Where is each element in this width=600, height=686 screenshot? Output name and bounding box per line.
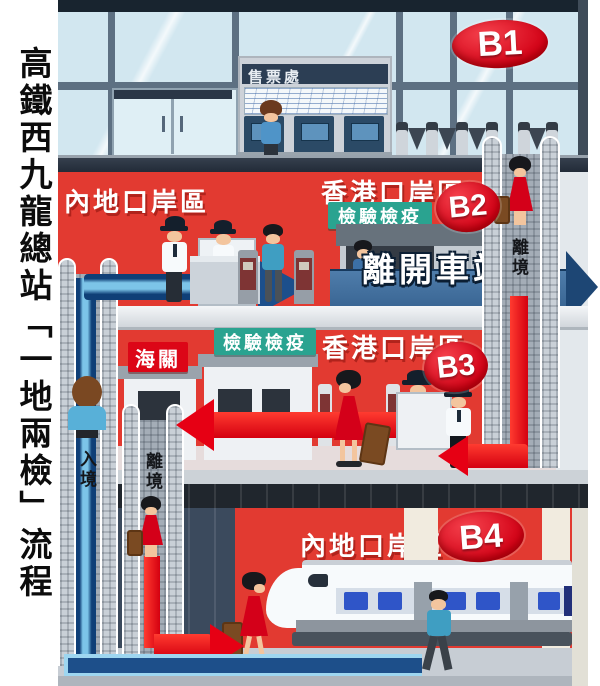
infographic: 高鐵西九龍總站「一地兩檢」流程 售票處 xyxy=(0,0,600,686)
departure-escalator-mid: 離境 xyxy=(122,404,182,660)
traveler-head xyxy=(339,383,351,393)
customs-badge: 海關 xyxy=(128,342,188,372)
escalator-rail xyxy=(540,136,560,468)
standing-officer-figure xyxy=(162,216,188,304)
arrival-escalator: 入境 xyxy=(58,258,116,666)
b2-mainland-zone-label: 內地口岸區 xyxy=(64,182,209,219)
traveler-head xyxy=(266,234,280,244)
traveler-head xyxy=(254,584,265,593)
ticket-machine xyxy=(294,116,334,154)
departure-arrow-b3-body xyxy=(212,412,336,438)
ticket-customer-figure xyxy=(260,100,284,158)
train-windshield xyxy=(308,574,328,587)
departure-escalator-right-label: 離境 xyxy=(510,238,527,278)
man-leg xyxy=(438,636,453,671)
echannel-kiosk xyxy=(294,250,314,304)
entrance-door xyxy=(112,88,238,160)
traveler-shoes xyxy=(336,461,362,467)
man-head xyxy=(431,599,446,610)
escalator-rail xyxy=(58,258,76,666)
b1-right-frame xyxy=(578,0,588,158)
arrival-escalator-label: 入境 xyxy=(78,450,95,490)
escalator-rider-figure xyxy=(68,376,106,438)
rider-shoulders xyxy=(68,406,106,430)
officer-head xyxy=(167,231,182,242)
caption-sidebar: 高鐵西九龍總站「一地兩檢」流程 xyxy=(0,0,58,686)
arrival-path-b4-walkway xyxy=(64,654,422,676)
traveler-leg xyxy=(265,270,272,302)
departure-escalator-mid-label: 離境 xyxy=(144,452,161,492)
officer-legs xyxy=(166,272,182,302)
b3-quarantine-badge: 檢驗檢疫 xyxy=(214,328,316,355)
rider-suitcase xyxy=(127,530,143,556)
man-leg xyxy=(422,636,438,671)
officer-head xyxy=(216,234,231,245)
traveler-dress xyxy=(334,396,364,440)
b1-top-frame xyxy=(58,0,588,12)
rider-head xyxy=(72,376,102,408)
traveler-leg xyxy=(352,440,357,462)
machine-screen xyxy=(351,123,379,141)
ticket-sign: 售票處 xyxy=(248,66,302,87)
gate-flap xyxy=(408,128,426,150)
traveler-leg xyxy=(275,270,282,302)
traveler-torso xyxy=(262,244,284,270)
train-nose xyxy=(266,568,342,628)
departure-arrow-b3-corner-horizontal xyxy=(466,444,528,468)
departure-arrow-b3-head xyxy=(176,399,214,451)
rider-legs xyxy=(514,211,526,225)
kiosk-screen xyxy=(243,262,253,270)
departure-arrow-b3-corner-head xyxy=(438,436,468,476)
traveler-leg xyxy=(340,440,345,462)
train-window xyxy=(538,592,560,610)
high-speed-train xyxy=(266,552,572,650)
escalator-rider-figure xyxy=(131,496,171,560)
officer-tie xyxy=(457,410,461,422)
b2-traveler-figure xyxy=(262,224,286,304)
echannel-kiosk xyxy=(238,250,258,304)
quarantine-building-roof xyxy=(198,354,318,367)
officer-tie xyxy=(173,244,177,257)
train-door xyxy=(510,582,528,620)
arrival-arrow-b2-corner xyxy=(84,274,164,300)
rider-legs xyxy=(76,430,98,438)
man-torso xyxy=(427,610,451,636)
traveler-dress xyxy=(240,596,268,636)
rider-dress xyxy=(507,177,533,211)
ticket-machine xyxy=(344,116,384,154)
customer-torso xyxy=(261,122,281,144)
rider-head xyxy=(514,168,526,177)
customer-head xyxy=(264,113,278,122)
gate-flap xyxy=(438,128,456,150)
escalator-rider-figure xyxy=(500,156,540,236)
train-window xyxy=(344,592,368,610)
train-window xyxy=(476,592,500,610)
officer-head xyxy=(451,397,466,408)
train-window-band-dark xyxy=(564,586,572,616)
escalator-rail xyxy=(100,258,118,666)
platform-pillar xyxy=(572,508,588,686)
door-center-gap xyxy=(171,99,174,154)
kiosk-screen xyxy=(299,262,309,270)
machine-screen xyxy=(301,123,329,141)
officer-cap xyxy=(165,216,185,227)
door-handle xyxy=(162,116,165,132)
train-window xyxy=(378,592,402,610)
vertical-title: 高鐵西九龍總站「一地兩檢」流程 xyxy=(9,46,57,666)
officer-cap xyxy=(214,220,232,230)
departure-escalator-right: 離境 xyxy=(482,136,558,468)
rider-head xyxy=(145,507,157,515)
b4-walking-man-figure xyxy=(424,590,456,678)
rider-legs xyxy=(145,545,157,557)
door-header xyxy=(114,90,232,99)
door-handle xyxy=(180,116,183,132)
